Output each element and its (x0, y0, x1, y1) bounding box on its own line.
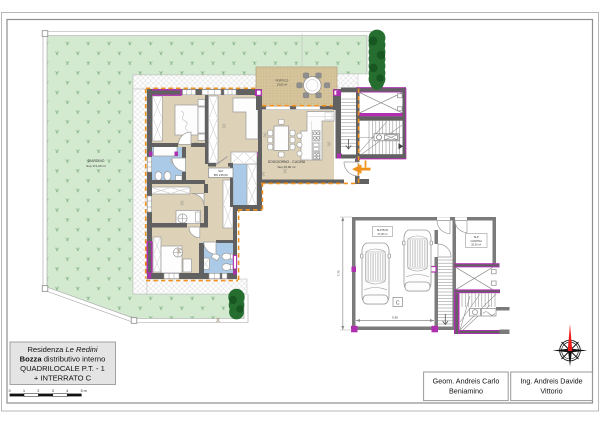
svg-text:SLP: SLP (474, 235, 479, 239)
svg-text:Bozza distributivo interno: Bozza distributivo interno (20, 355, 106, 364)
svg-text:5 m: 5 m (81, 389, 87, 393)
svg-text:SLP BOX: SLP BOX (377, 228, 389, 232)
svg-text:Ing. Andreis Davide: Ing. Andreis Davide (520, 377, 582, 386)
svg-text:3: 3 (52, 389, 54, 393)
svg-text:Vittorio: Vittorio (540, 387, 562, 396)
svg-text:0: 0 (9, 389, 11, 393)
svg-text:2: 2 (37, 389, 39, 393)
svg-text:QUADRILOCALE P.T. - 1: QUADRILOCALE P.T. - 1 (20, 364, 105, 373)
svg-text:Sup 45,00 m²: Sup 45,00 m² (277, 165, 295, 169)
svg-text:Sup 171,00 m²: Sup 171,00 m² (86, 164, 106, 168)
svg-text:9,30: 9,30 (392, 316, 398, 320)
svg-text:+ INTERRATO C: + INTERRATO C (34, 374, 92, 383)
svg-text:7,70: 7,70 (337, 270, 341, 276)
svg-text:Beniamino: Beniamino (449, 387, 483, 396)
svg-text:Geom. Andreis Carlo: Geom. Andreis Carlo (433, 377, 500, 386)
svg-text:CANTINA: CANTINA (471, 239, 483, 243)
svg-text:1: 1 (23, 389, 25, 393)
svg-text:15,00 m²: 15,00 m² (277, 82, 287, 86)
svg-text:SOGGIORNO - CUCINA: SOGGIORNO - CUCINA (268, 160, 306, 164)
svg-text:C: C (396, 300, 400, 306)
svg-text:Residenza Le Redini: Residenza Le Redini (27, 345, 97, 354)
svg-text:GIARDINO: GIARDINO (88, 159, 105, 163)
svg-text:BO 135,00: BO 135,00 (214, 173, 228, 177)
svg-text:PORTICO: PORTICO (276, 79, 290, 83)
svg-text:4: 4 (66, 389, 68, 393)
svg-text:20,00 m²: 20,00 m² (471, 244, 481, 247)
svg-text:47,00 m²: 47,00 m² (377, 232, 387, 236)
